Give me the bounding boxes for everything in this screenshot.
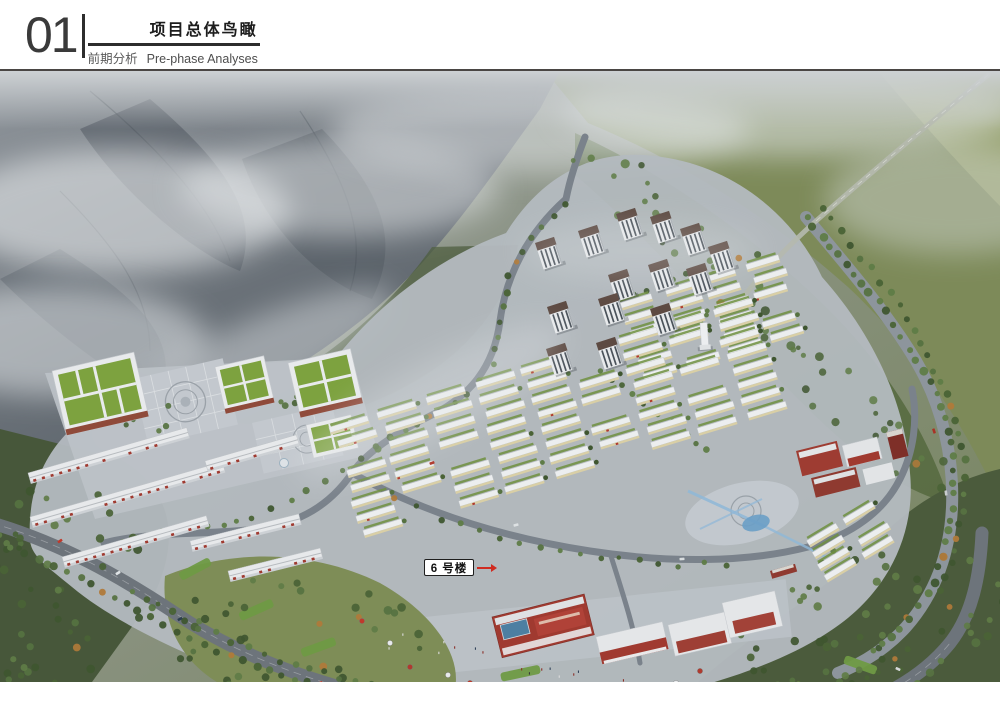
presentation-page: { "header": { "section_number": "01", "t… <box>0 0 1000 707</box>
subtitle-cn: 前期分析 <box>88 52 138 66</box>
label-arrow-head <box>491 564 497 572</box>
section-title: 项目总体鸟瞰 <box>88 16 260 46</box>
rendering-scene <box>0 71 1000 682</box>
aerial-rendering <box>0 69 1000 682</box>
subtitle-en: Pre-phase Analyses <box>147 52 258 66</box>
label-arrow-line <box>477 567 491 569</box>
building-6-label: 6 号楼 <box>424 559 474 576</box>
header-text-block: 项目总体鸟瞰 前期分析Pre-phase Analyses <box>88 11 260 67</box>
section-number: 01 <box>25 11 77 59</box>
section-subtitle: 前期分析Pre-phase Analyses <box>88 48 260 67</box>
section-header: 01 项目总体鸟瞰 前期分析Pre-phase Analyses <box>25 11 260 67</box>
header-divider <box>82 14 85 58</box>
building-6-label-text: 6 号楼 <box>431 560 468 576</box>
